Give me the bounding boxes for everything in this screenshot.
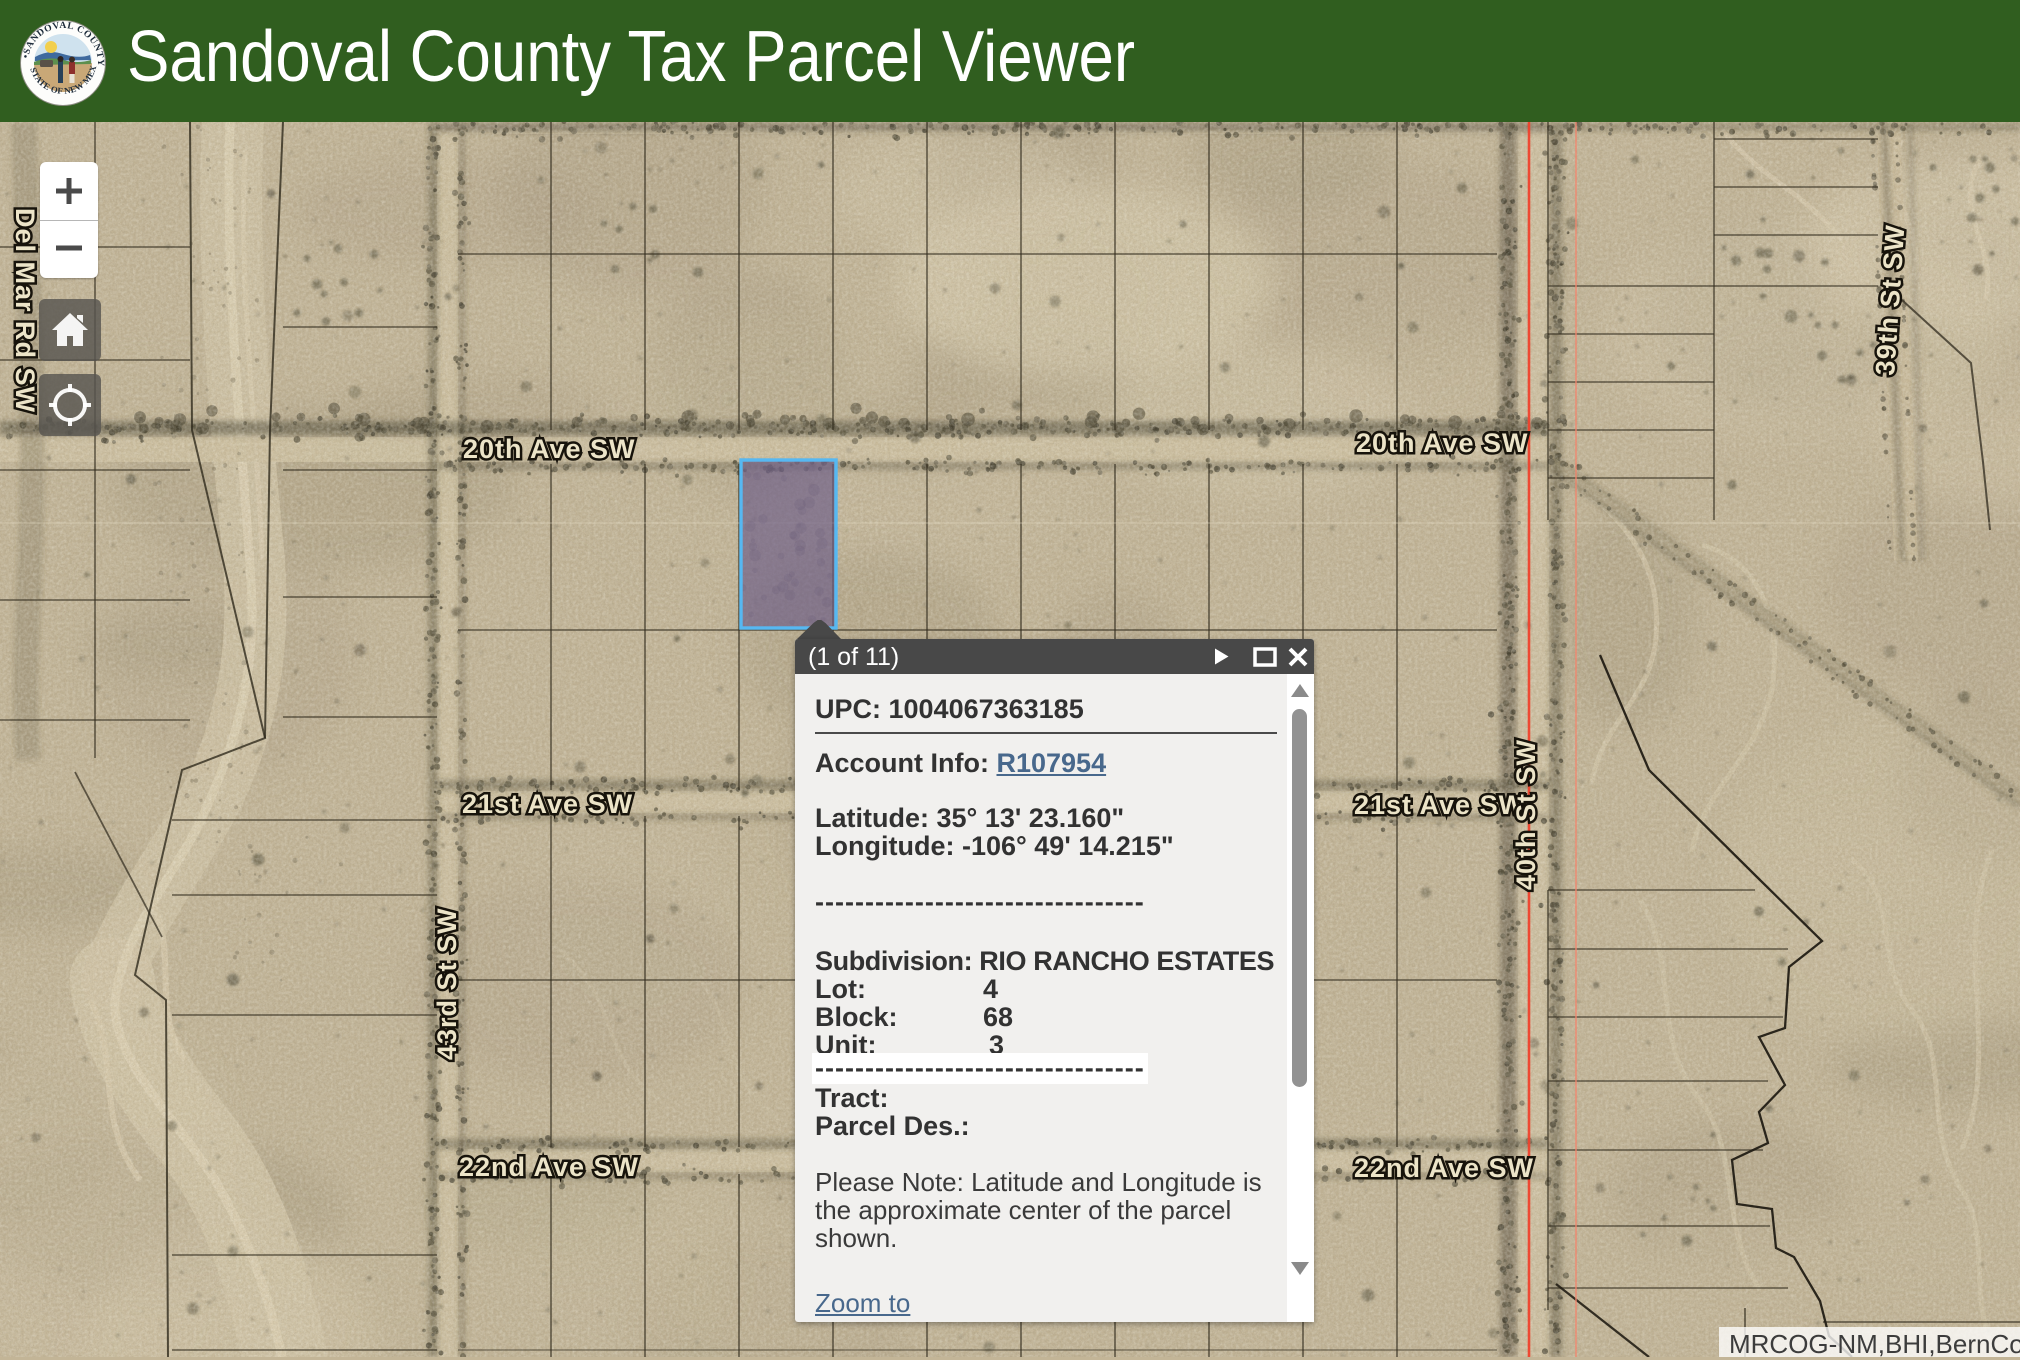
svg-text:22nd Ave SW: 22nd Ave SW [459, 1152, 639, 1182]
svg-text:20th Ave SW: 20th Ave SW [463, 434, 636, 464]
svg-text:22nd Ave SW: 22nd Ave SW [1354, 1153, 1534, 1183]
svg-text:Sandoval County Tax Parcel Vie: Sandoval County Tax Parcel Viewer [127, 17, 1135, 97]
svg-text:20th Ave SW: 20th Ave SW [1356, 428, 1529, 458]
svg-text:21st Ave SW: 21st Ave SW [462, 789, 633, 819]
svg-text:43rd St SW: 43rd St SW [432, 907, 462, 1060]
svg-text:Del Mar Rd SW: Del Mar Rd SW [10, 208, 40, 413]
svg-text:40th St SW: 40th St SW [1511, 739, 1541, 890]
svg-text:21st Ave SW: 21st Ave SW [1354, 790, 1525, 820]
